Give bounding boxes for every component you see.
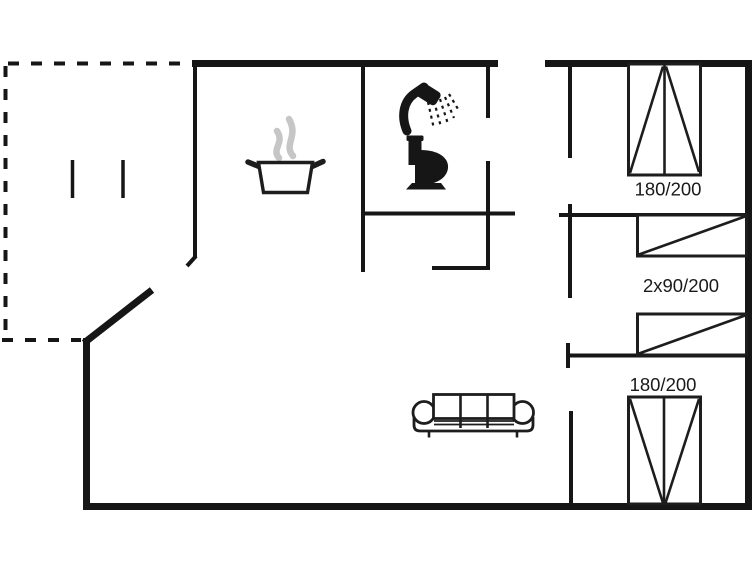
wall-end-cap — [187, 256, 196, 266]
bunk-size-label: 2x90/200 — [643, 275, 719, 296]
bed-size-label: 180/200 — [630, 374, 697, 395]
pot-body — [259, 163, 313, 193]
sofa-back — [434, 395, 515, 419]
cooking-pot-icon — [248, 119, 323, 193]
shower-icon — [404, 82, 458, 131]
toilet-icon — [406, 136, 448, 190]
toilet-base — [406, 183, 446, 190]
sofa-icon — [413, 395, 534, 438]
steam-icon — [276, 131, 279, 158]
wall-diagonal — [84, 290, 152, 343]
steam-icon — [289, 119, 293, 156]
toilet-bowl — [415, 150, 448, 185]
shower-spray — [434, 101, 441, 127]
shower-spray — [440, 99, 448, 124]
double-bed-icon — [629, 64, 701, 175]
double-bed-icon — [629, 397, 701, 504]
bed-size-label: 180/200 — [635, 179, 702, 200]
terrace-outline — [2, 64, 192, 342]
floor-plan-canvas: 180/200 2x90/200 180/200 — [0, 0, 755, 566]
sofa-armrest-left — [413, 402, 435, 424]
shower-spray — [428, 102, 434, 129]
floor-plan: 180/200 2x90/200 180/200 — [0, 0, 755, 566]
shower-spray — [449, 94, 458, 109]
